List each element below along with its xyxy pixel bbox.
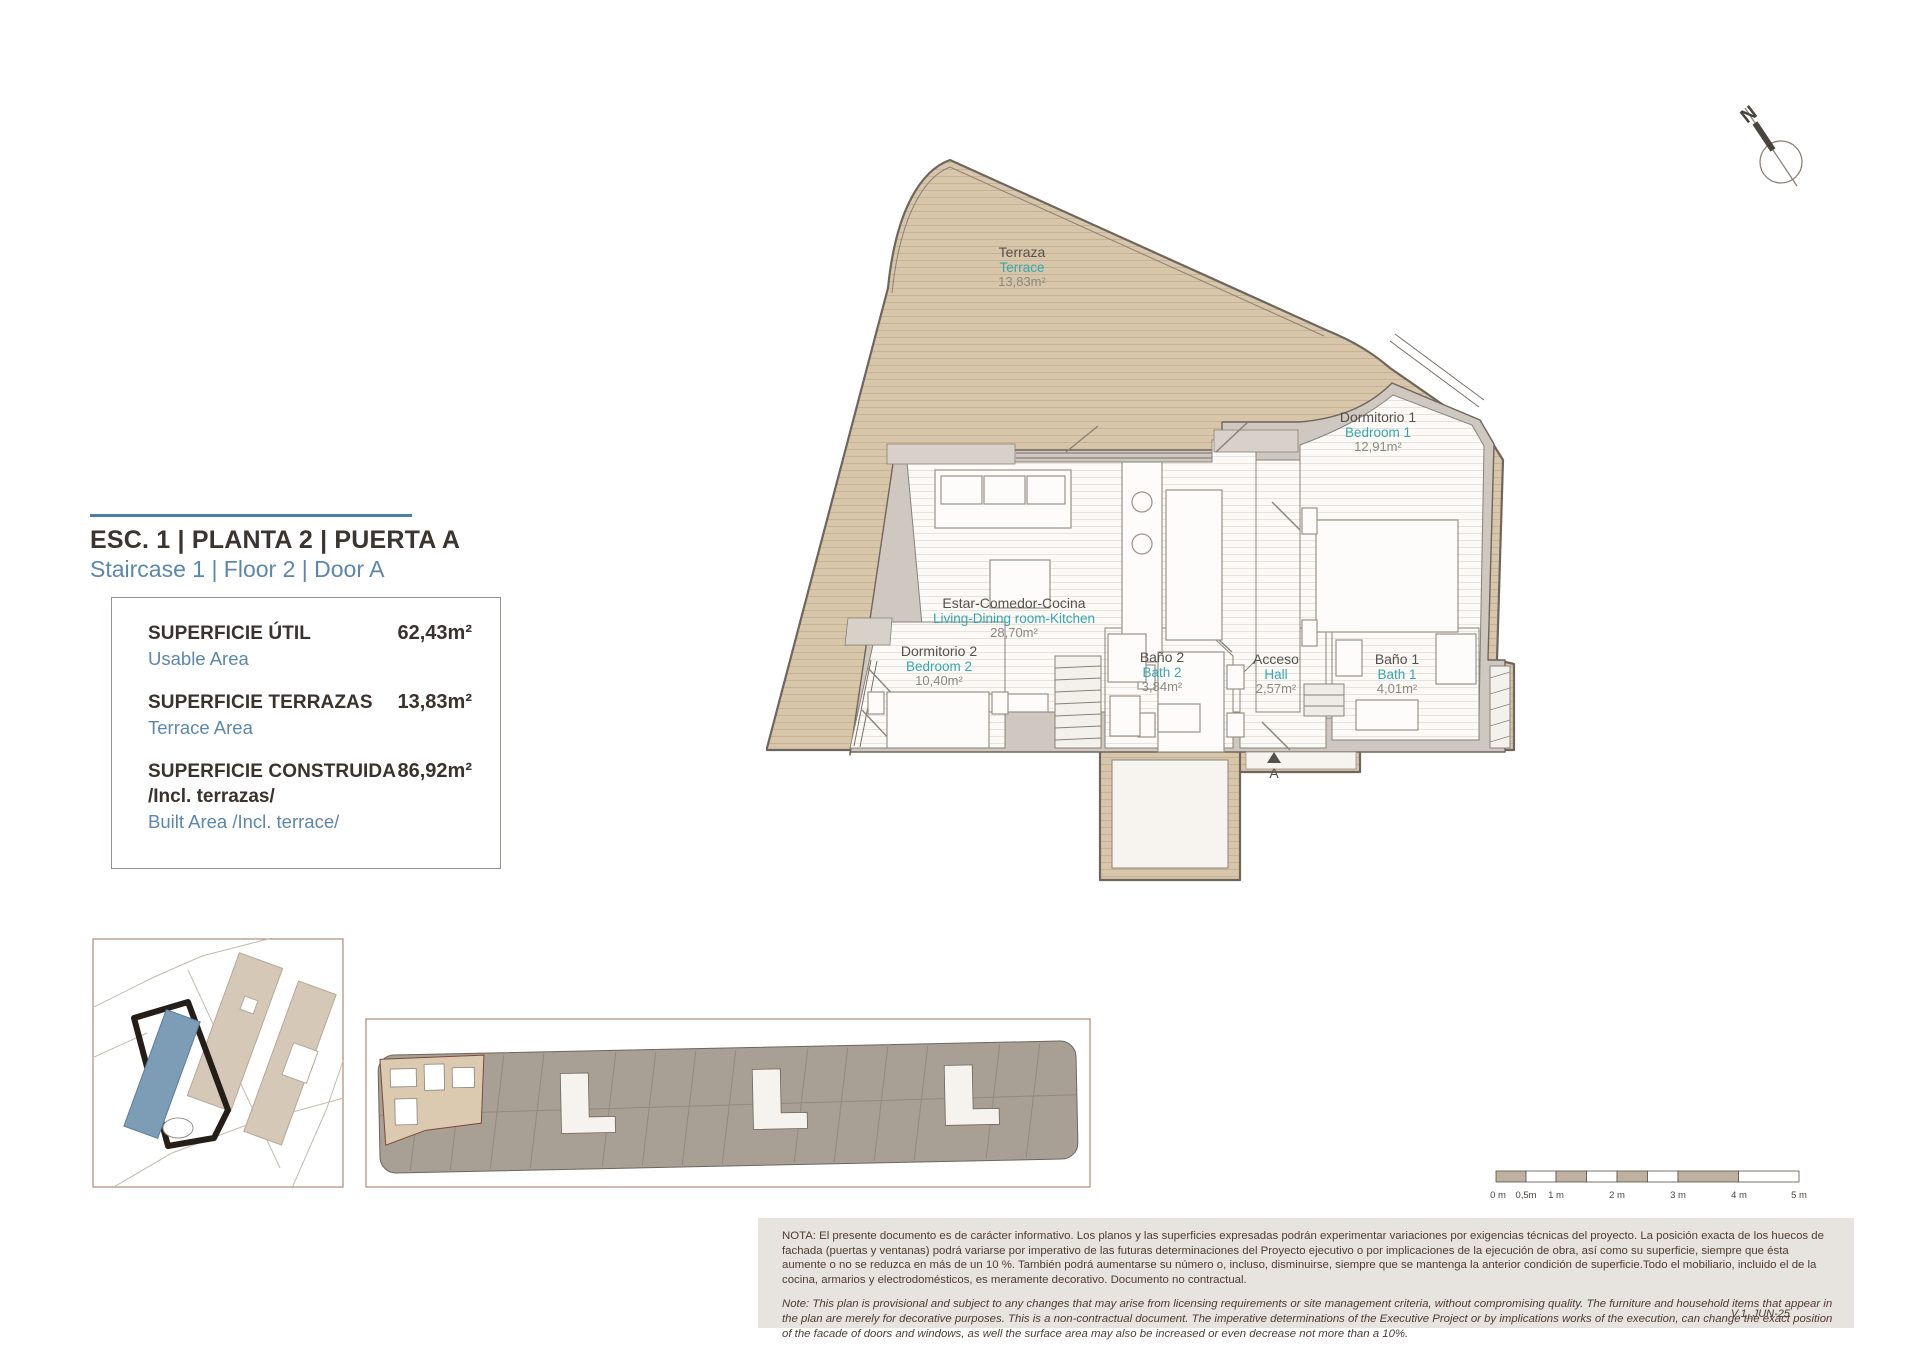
- built-area-label: SUPERFICIE CONSTRUIDA: [148, 761, 396, 783]
- svg-text:2,57m²: 2,57m²: [1256, 681, 1297, 696]
- kitchen-island: [1166, 490, 1222, 640]
- room-label-bath2: Baño 2 Bath 2 3,84m²: [1140, 649, 1185, 694]
- scale-bar: 0 m 0,5m 1 m 2 m 3 m 4 m 5 m: [1488, 1166, 1818, 1208]
- site-plan-map: [92, 938, 344, 1188]
- kitchen-counter: [1122, 462, 1162, 662]
- svg-text:10,40m²: 10,40m²: [915, 673, 963, 688]
- usable-area-label: SUPERFICIE ÚTIL: [148, 623, 311, 645]
- version-label: V.1_JUN-25: [1731, 1308, 1790, 1320]
- area-summary-box: SUPERFICIE ÚTIL 62,43m² Usable Area SUPE…: [111, 597, 501, 869]
- built-area-row: SUPERFICIE CONSTRUIDA 86,92m² /Incl. ter…: [148, 760, 472, 833]
- svg-text:2 m: 2 m: [1609, 1190, 1625, 1201]
- svg-text:Living-Dining room-Kitchen: Living-Dining room-Kitchen: [933, 611, 1095, 626]
- svg-text:0,5m: 0,5m: [1515, 1190, 1536, 1201]
- floorplan-document-page: ESC. 1 | PLANTA 2 | PUERTA A Staircase 1…: [0, 0, 1920, 1357]
- disclaimer-note-english: Note: This plan is provisional and subje…: [782, 1297, 1834, 1341]
- entry-recess-floor: [1246, 752, 1356, 769]
- svg-text:Bath 1: Bath 1: [1377, 667, 1416, 682]
- svg-text:3,84m²: 3,84m²: [1142, 679, 1183, 694]
- built-area-label-es2: /Incl. terrazas/: [148, 786, 472, 808]
- svg-text:Bedroom 1: Bedroom 1: [1345, 425, 1411, 440]
- built-area-value: 86,92m²: [398, 760, 473, 783]
- svg-text:Bedroom 2: Bedroom 2: [906, 659, 972, 674]
- terrace-area-label: SUPERFICIE TERRAZAS: [148, 692, 373, 714]
- svg-text:Terraza: Terraza: [999, 244, 1046, 260]
- title-divider-rule: [90, 514, 412, 517]
- svg-text:1 m: 1 m: [1548, 1190, 1564, 1201]
- svg-text:Bath 2: Bath 2: [1142, 665, 1181, 680]
- svg-text:5 m: 5 m: [1791, 1190, 1807, 1201]
- page-title: ESC. 1 | PLANTA 2 | PUERTA A: [90, 526, 460, 555]
- svg-text:12,91m²: 12,91m²: [1354, 439, 1402, 454]
- built-area-label-en: Built Area /Incl. terrace/: [148, 811, 472, 833]
- svg-text:4 m: 4 m: [1731, 1190, 1747, 1201]
- terrace-area-row: SUPERFICIE TERRAZAS 13,83m² Terrace Area: [148, 691, 472, 739]
- svg-text:A: A: [1269, 765, 1279, 781]
- svg-text:Baño 2: Baño 2: [1140, 649, 1185, 665]
- bedroom2-bed: [868, 692, 1008, 748]
- floor-key-plan: [365, 1018, 1091, 1188]
- bedroom1-bed: [1302, 508, 1458, 646]
- disclaimer-note-box: NOTA: El presente documento es de caráct…: [758, 1218, 1854, 1328]
- usable-area-value: 62,43m²: [398, 622, 473, 645]
- usable-area-label-en: Usable Area: [148, 648, 472, 670]
- kitchen-lintel-block: [1214, 430, 1298, 452]
- room-label-bath1: Baño 1 Bath 1 4,01m²: [1375, 651, 1420, 696]
- terrace-area-value: 13,83m²: [398, 691, 473, 714]
- terrace-area-label-en: Terrace Area: [148, 717, 472, 739]
- svg-text:Hall: Hall: [1264, 667, 1287, 682]
- scale-bar-segments: [1496, 1171, 1799, 1182]
- svg-text:13,83m²: 13,83m²: [998, 274, 1046, 289]
- svg-text:Acceso: Acceso: [1253, 651, 1299, 667]
- svg-text:Dormitorio 2: Dormitorio 2: [901, 643, 977, 659]
- svg-text:Terrace: Terrace: [999, 260, 1044, 275]
- floor-plan-drawing: Terraza Terrace 13,83m² Estar-Comedor-Co…: [600, 100, 1550, 1100]
- svg-text:Baño 1: Baño 1: [1375, 651, 1420, 667]
- svg-text:Dormitorio 1: Dormitorio 1: [1340, 409, 1416, 425]
- room-label-terrace: Terraza Terrace 13,83m²: [998, 244, 1046, 289]
- usable-area-row: SUPERFICIE ÚTIL 62,43m² Usable Area: [148, 622, 472, 670]
- bedroom2-lintel-block: [845, 618, 892, 645]
- svg-text:4,01m²: 4,01m²: [1377, 681, 1418, 696]
- svg-text:28,70m²: 28,70m²: [990, 625, 1038, 640]
- disclaimer-note-spanish: NOTA: El presente documento es de caráct…: [782, 1229, 1834, 1287]
- living-lintel-block: [887, 444, 1015, 464]
- stair-shaft-below: [1112, 760, 1228, 868]
- svg-text:3 m: 3 m: [1670, 1190, 1686, 1201]
- svg-text:Estar-Comedor-Cocina: Estar-Comedor-Cocina: [942, 595, 1085, 611]
- page-subtitle: Staircase 1 | Floor 2 | Door A: [90, 556, 384, 583]
- sofa: [935, 470, 1071, 528]
- north-arrow-icon: N: [1725, 88, 1835, 203]
- svg-text:0 m: 0 m: [1490, 1190, 1506, 1201]
- bedroom1-wardrobe: [1304, 684, 1344, 716]
